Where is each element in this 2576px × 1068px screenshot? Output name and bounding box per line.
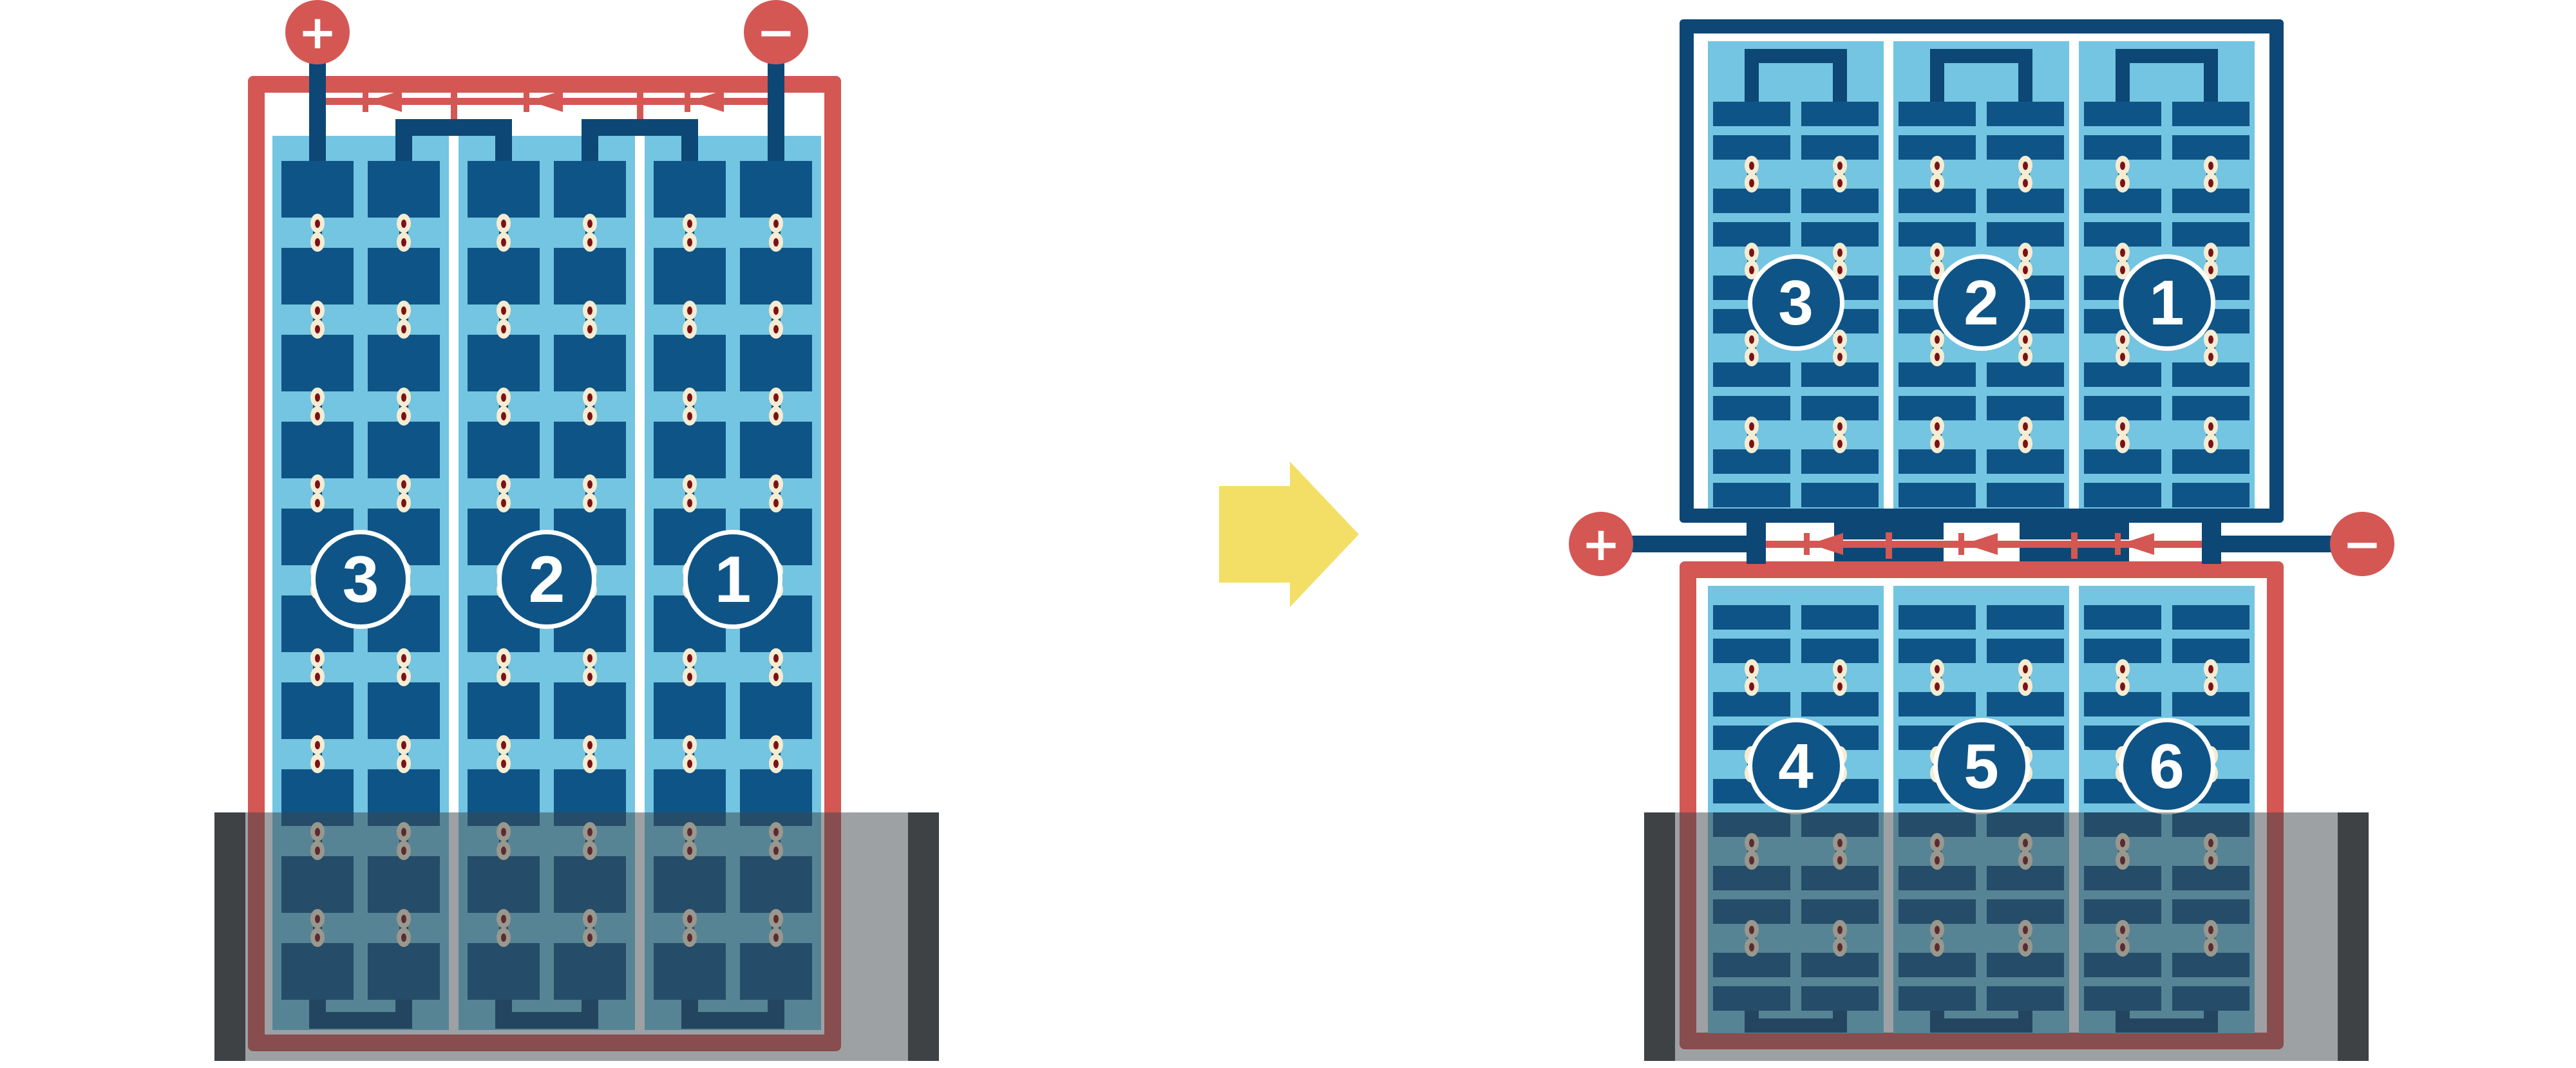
joint-pin bbox=[2023, 440, 2028, 448]
shade-edge-left bbox=[1644, 812, 1675, 1061]
string-top-connector-leg bbox=[2116, 62, 2130, 102]
solar-cell bbox=[1713, 483, 1790, 507]
solar-cell bbox=[1801, 102, 1879, 126]
string-number-badge: 4 bbox=[1748, 718, 1844, 814]
bypass-diode-arrow-icon bbox=[1810, 533, 1843, 555]
junction-link-right bbox=[2202, 519, 2221, 564]
joint-pin bbox=[1837, 248, 1842, 257]
joint-pin bbox=[2023, 682, 2028, 691]
joint-pad bbox=[2204, 659, 2218, 679]
joint-pin bbox=[1935, 682, 1940, 691]
joint-pad bbox=[2204, 347, 2218, 366]
joint-pin bbox=[2208, 353, 2213, 361]
joint-pad bbox=[2116, 434, 2130, 453]
bypass-diode-bar bbox=[1958, 533, 1964, 555]
joint-pad bbox=[1930, 243, 1944, 262]
joint-pin bbox=[2023, 162, 2028, 170]
joint-pad bbox=[1745, 243, 1759, 262]
joint-pin bbox=[1837, 682, 1842, 691]
joint-pad bbox=[2116, 173, 2130, 192]
joint-pin bbox=[2208, 248, 2213, 257]
joint-pin bbox=[1837, 179, 1842, 187]
joint-pin bbox=[1749, 440, 1754, 448]
joint-pad bbox=[1833, 434, 1847, 453]
joint-pad bbox=[2018, 243, 2032, 262]
joint-pin bbox=[1749, 162, 1754, 170]
joint-pin bbox=[1749, 179, 1754, 187]
diode-tap bbox=[2071, 532, 2078, 559]
joint-pin bbox=[2208, 162, 2213, 170]
solar-cell bbox=[2172, 102, 2249, 126]
joint-pin bbox=[2120, 335, 2125, 344]
joint-pin bbox=[2120, 248, 2125, 257]
joint-pin bbox=[2120, 266, 2125, 274]
solar-cell bbox=[1987, 605, 2064, 630]
joint-pad bbox=[2204, 156, 2218, 175]
string-top-connector-bar bbox=[1930, 49, 2032, 63]
string-number-badge: 6 bbox=[2119, 718, 2215, 814]
joint-pad bbox=[2204, 434, 2218, 453]
joint-pin bbox=[2120, 422, 2125, 431]
solar-cell bbox=[2084, 102, 2161, 126]
joint-pin bbox=[1749, 248, 1754, 257]
joint-pin bbox=[1749, 682, 1754, 691]
joint-pad bbox=[2204, 417, 2218, 436]
negative-terminal: − bbox=[2330, 512, 2394, 576]
joint-pad bbox=[1930, 677, 1944, 696]
joint-pin bbox=[1935, 179, 1940, 187]
joint-pad bbox=[2116, 243, 2130, 262]
joint-pad bbox=[2204, 243, 2218, 262]
joint-pin bbox=[1837, 353, 1842, 361]
joint-pin bbox=[2120, 179, 2125, 187]
string-number: 6 bbox=[2149, 735, 2184, 798]
string-number: 1 bbox=[2149, 271, 2184, 334]
string-number: 3 bbox=[1778, 271, 1814, 334]
joint-pad bbox=[1930, 417, 1944, 436]
joint-pin bbox=[1749, 335, 1754, 344]
string-top-connector-bar bbox=[1745, 49, 1847, 63]
solar-cell bbox=[1899, 483, 1976, 507]
joint-pad bbox=[2116, 677, 2130, 696]
joint-pin bbox=[2023, 422, 2028, 431]
joint-pad bbox=[2018, 156, 2032, 175]
joint-pad bbox=[1930, 330, 1944, 349]
joint-pad bbox=[2018, 417, 2032, 436]
joint-pin bbox=[1935, 665, 1940, 673]
joint-pin bbox=[1749, 665, 1754, 673]
terminal-stem bbox=[2221, 536, 2331, 552]
joint-pin bbox=[2208, 266, 2213, 274]
joint-pad bbox=[1833, 156, 1847, 175]
joint-pin bbox=[2208, 422, 2213, 431]
joint-pad bbox=[2018, 677, 2032, 696]
joint-pad bbox=[1833, 173, 1847, 192]
string-top-connector-leg bbox=[2018, 62, 2032, 102]
string-number-badge: 3 bbox=[1748, 254, 1844, 351]
joint-pad bbox=[1745, 156, 1759, 175]
string-number: 4 bbox=[1778, 735, 1814, 798]
bypass-diode-bar bbox=[2115, 533, 2121, 555]
joint-pad bbox=[1745, 417, 1759, 436]
joint-pin bbox=[1837, 422, 1842, 431]
joint-pin bbox=[1749, 353, 1754, 361]
joint-pin bbox=[1935, 422, 1940, 431]
solar-cell bbox=[1987, 483, 2064, 507]
joint-pin bbox=[2208, 335, 2213, 344]
joint-pad bbox=[2018, 173, 2032, 192]
joint-pad bbox=[2204, 330, 2218, 349]
joint-pad bbox=[1930, 156, 1944, 175]
string-top-connector-bar bbox=[2116, 49, 2218, 63]
solar-cell bbox=[1899, 102, 1976, 126]
diagram-canvas: +−321 321456+− bbox=[0, 0, 2576, 1068]
joint-pad bbox=[1745, 330, 1759, 349]
joint-pin bbox=[1935, 353, 1940, 361]
joint-pad bbox=[2018, 434, 2032, 453]
joint-pin bbox=[2208, 440, 2213, 448]
joint-pad bbox=[2204, 677, 2218, 696]
bypass-diode-arrow-icon bbox=[1964, 533, 1998, 555]
joint-pin bbox=[2120, 440, 2125, 448]
solar-cell bbox=[1801, 483, 1879, 507]
string-top-connector-leg bbox=[1745, 62, 1759, 102]
joint-pin bbox=[2208, 179, 2213, 187]
shade-edge-right bbox=[2338, 812, 2369, 1061]
joint-pad bbox=[1833, 417, 1847, 436]
solar-cell bbox=[1713, 605, 1790, 630]
joint-pin bbox=[1935, 335, 1940, 344]
joint-pad bbox=[2018, 347, 2032, 366]
joint-pin bbox=[2120, 682, 2125, 691]
bypass-diode-bar bbox=[1804, 533, 1810, 555]
joint-pin bbox=[2023, 248, 2028, 257]
joint-pad bbox=[1833, 347, 1847, 366]
string-number-badge: 1 bbox=[2119, 254, 2215, 351]
joint-pad bbox=[1833, 243, 1847, 262]
joint-pin bbox=[1749, 422, 1754, 431]
joint-pin bbox=[1837, 335, 1842, 344]
joint-pad bbox=[1930, 659, 1944, 679]
joint-pin bbox=[1837, 665, 1842, 673]
joint-pad bbox=[2204, 173, 2218, 192]
joint-pin bbox=[1935, 162, 1940, 170]
joint-pad bbox=[2116, 330, 2130, 349]
junction-link-left bbox=[1747, 519, 1766, 564]
right-module: 321456+− bbox=[0, 0, 2576, 1068]
joint-pad bbox=[2116, 156, 2130, 175]
joint-pin bbox=[2023, 353, 2028, 361]
joint-pad bbox=[1930, 347, 1944, 366]
solar-cell bbox=[2084, 605, 2161, 630]
joint-pin bbox=[1935, 266, 1940, 274]
joint-pad bbox=[1745, 677, 1759, 696]
solar-cell bbox=[1899, 605, 1976, 630]
string-number: 2 bbox=[1964, 271, 1999, 334]
solar-cell bbox=[2172, 483, 2249, 507]
solar-cell bbox=[1987, 102, 2064, 126]
joint-pin bbox=[2023, 665, 2028, 673]
string-top-connector-leg bbox=[2204, 62, 2218, 102]
joint-pin bbox=[1837, 266, 1842, 274]
positive-terminal: + bbox=[1569, 512, 1633, 576]
string-top-connector-leg bbox=[1833, 62, 1847, 102]
joint-pin bbox=[2023, 179, 2028, 187]
joint-pad bbox=[1930, 173, 1944, 192]
diode-tap bbox=[1886, 532, 1892, 559]
joint-pin bbox=[1837, 162, 1842, 170]
solar-cell bbox=[1801, 605, 1879, 630]
joint-pin bbox=[1935, 248, 1940, 257]
joint-pad bbox=[1745, 434, 1759, 453]
joint-pad bbox=[2116, 347, 2130, 366]
joint-pad bbox=[1833, 677, 1847, 696]
string-number: 5 bbox=[1964, 735, 1999, 798]
terminal-sign: − bbox=[2343, 521, 2382, 567]
joint-pin bbox=[2023, 266, 2028, 274]
joint-pad bbox=[2116, 417, 2130, 436]
joint-pin bbox=[2120, 353, 2125, 361]
string-number-badge: 2 bbox=[1933, 254, 2030, 351]
string-top-connector-leg bbox=[1930, 62, 1944, 102]
solar-cell bbox=[1713, 102, 1790, 126]
terminal-stem bbox=[1632, 536, 1747, 552]
shade-overlay bbox=[1675, 812, 2338, 1061]
joint-pin bbox=[1935, 440, 1940, 448]
joint-pad bbox=[2116, 659, 2130, 679]
joint-pin bbox=[2208, 665, 2213, 673]
bypass-diode-arrow-icon bbox=[2121, 533, 2154, 555]
joint-pad bbox=[1930, 434, 1944, 453]
joint-pad bbox=[1833, 330, 1847, 349]
joint-pin bbox=[2120, 665, 2125, 673]
string-number-badge: 5 bbox=[1933, 718, 2030, 814]
joint-pin bbox=[2023, 335, 2028, 344]
joint-pad bbox=[1833, 659, 1847, 679]
terminal-sign: + bbox=[1582, 521, 1620, 567]
joint-pad bbox=[1745, 659, 1759, 679]
joint-pin bbox=[1837, 440, 1842, 448]
joint-pad bbox=[1745, 173, 1759, 192]
joint-pin bbox=[2120, 162, 2125, 170]
joint-pin bbox=[2208, 682, 2213, 691]
joint-pad bbox=[2018, 330, 2032, 349]
solar-cell bbox=[2084, 483, 2161, 507]
joint-pad bbox=[2018, 659, 2032, 679]
solar-cell bbox=[2172, 605, 2249, 630]
joint-pin bbox=[1749, 266, 1754, 274]
joint-pad bbox=[1745, 347, 1759, 366]
